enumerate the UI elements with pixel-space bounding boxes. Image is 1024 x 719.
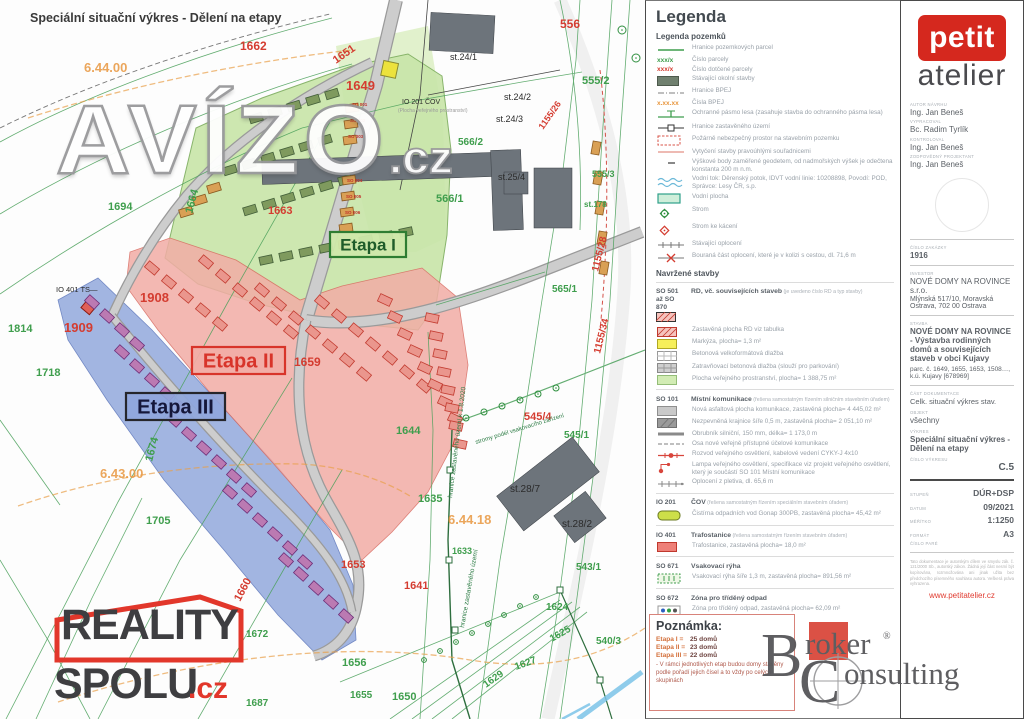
legend-row: Strom ke kácení <box>656 223 894 239</box>
spolu-text: SPOLU <box>54 660 197 709</box>
map-label: 1908 <box>140 290 169 305</box>
etapa-label: Etapa II <box>203 351 274 373</box>
line-reddot-icon <box>656 451 687 460</box>
tree-red-icon <box>656 223 687 238</box>
rect-reddash-icon <box>656 135 687 146</box>
map-label: 555/2 <box>582 75 610 87</box>
num-green-icon: xxx/x <box>656 57 687 64</box>
legend-group: SO 672Zóna pro tříděný odpadZóna pro tří… <box>656 588 894 616</box>
person-field: KONTROLOVALIng. Jan Beneš <box>910 137 1014 152</box>
meta-field: ČÍSLO PARÉ <box>910 541 1014 546</box>
legend-row-text: Osa nové veřejně přístupné účelové komun… <box>692 440 828 448</box>
legend-group-header: SO 671Vsakovací rýha <box>656 563 894 571</box>
map-label: 1663 <box>268 205 292 217</box>
legend-row: Vodní tok: Děrenský potok, IDVT vodní li… <box>656 175 894 191</box>
legend-row: x.xx.xxČísla BPEJ <box>656 99 894 107</box>
legend-groups: Hranice pozemkových parcelxxx/xČíslo par… <box>656 44 894 616</box>
avizo-text: AVÍZO <box>56 85 389 194</box>
rect-teal-icon <box>656 193 687 204</box>
legend-row: Vodní plocha <box>656 193 894 205</box>
legend-group: Hranice pozemkových parcelxxx/xČíslo par… <box>656 44 894 263</box>
wavy-icon <box>656 176 687 188</box>
legend-row: Betonová velkoformátová dlažba <box>656 350 894 361</box>
legend-row: Hranice BPEJ <box>656 87 894 98</box>
legend-row-text: Bouraná část oplocení, které je v kolizi… <box>692 252 856 260</box>
legend-row: Ochranné pásmo lesa (zasahuje stavba do … <box>656 109 894 122</box>
map-label: 6.44.00 <box>84 60 127 75</box>
legend-group-header: SO 672Zóna pro tříděný odpad <box>656 595 894 603</box>
legend-row-text: Plocha veřejného prostranství, plocha= 1… <box>692 375 836 383</box>
reality-cz: .cz <box>188 672 228 706</box>
legend-row: Hranice zastavěného území <box>656 123 894 134</box>
petit-atelier-logo: petit <box>918 15 1006 61</box>
legend-row: Stávající okolní stavby <box>656 75 894 86</box>
map-label: 6.44.18 <box>448 512 491 527</box>
legend-row: Nová asfaltová plocha komunikace, zastav… <box>656 406 894 417</box>
person-field: VYPRACOVALBc. Radim Tyrlík <box>910 119 1014 134</box>
map-label: st.28/7 <box>510 484 540 495</box>
legend-row: Trafostanice, zastavěná plocha= 18,0 m² <box>656 542 894 553</box>
legend-row: Čistírna odpadních vod Gonap 300PB, zast… <box>656 510 894 522</box>
parcels-text: parc. č. 1649, 1655, 1653, 1508…, k.ú. K… <box>910 366 1014 380</box>
drawing-page: Etapa IEtapa IIEtapa III Speciální situa… <box>0 0 1024 719</box>
part-field: ČÁST DOKUMENTACE Celk. situační výkres s… <box>910 391 1014 406</box>
rect-yellow-icon <box>656 339 687 349</box>
line-thick-icon <box>656 430 687 438</box>
legend-row: Strom <box>656 206 894 222</box>
map-label: 1624 <box>546 602 569 613</box>
tick-icon <box>656 159 687 167</box>
map-label: 565/1 <box>552 284 577 295</box>
map-label: 1655 <box>350 690 373 701</box>
line-green-icon <box>656 45 687 55</box>
legend-row: Vytyčení stavby pravoúhlými souřadnicemi <box>656 148 894 157</box>
legend-group: SO 671Vsakovací rýhaVsakovací rýha šíře … <box>656 556 894 584</box>
map-label: Speciální situační výkres - Dělení na et… <box>30 11 282 25</box>
legend-row-text: Zatravňovací betonová dlažba (slouží pro… <box>692 363 839 371</box>
map-label: hranice zastavěného území <box>459 549 480 629</box>
avizo-cz: .cz <box>389 132 453 183</box>
legend-row: xxx/xČíslo dotčené parcely <box>656 66 894 74</box>
rect-redsolid-icon <box>656 542 687 552</box>
legend-row-text: Čistírna odpadních vod Gonap 300PB, zast… <box>692 510 881 518</box>
legend-row: Osa nové veřejně přístupné účelové komun… <box>656 440 894 449</box>
legend-row: Lampa veřejného osvětlení, specifikace v… <box>656 461 894 477</box>
broker-registered-mark: ® <box>883 631 891 642</box>
line-T-icon <box>656 109 687 121</box>
object-field: OBJEKT všechny <box>910 410 1014 425</box>
legend-group: IO 401Trafostanice (řešena samostatným ř… <box>656 525 894 552</box>
fence-x-icon <box>656 253 687 263</box>
line-dashdot-icon <box>656 88 687 98</box>
legend-row: Markýza, plocha= 1,3 m² <box>656 338 894 349</box>
line-sq-icon <box>656 123 687 133</box>
pill-yg-icon <box>656 510 687 521</box>
legend-row-text: Požárně nebezpečný prostor na stavebním … <box>692 135 839 143</box>
rect-gray-icon <box>656 406 687 416</box>
legend-row-text: Zóna pro tříděný odpad, zastavěná plocha… <box>692 605 840 613</box>
copyright-note: Tato dokumentace je autorským dílem ve s… <box>910 559 1014 588</box>
legend-row-text: Betonová velkoformátová dlažba <box>692 350 783 358</box>
legend-row: Zastavěná plocha RD viz tabulka <box>656 326 894 337</box>
map-label: 1629 <box>481 668 506 690</box>
legend-row-text: Lampa veřejného osvětlení, specifikace v… <box>692 461 894 477</box>
etapa-label: Etapa III <box>137 397 214 419</box>
legend-row-text: Výškové body zaměřené geodetem, od nadmo… <box>692 158 894 174</box>
reality-text: REALITY <box>61 601 238 650</box>
legend-row: Vsakovací rýha šíře 1,3 m, zastavěná plo… <box>656 573 894 585</box>
legend-row-text: Vytyčení stavby pravoúhlými souřadnicemi <box>692 148 811 156</box>
map-label: 1909 <box>64 320 93 335</box>
map-label: 1653 <box>341 559 365 571</box>
legend-row-text: Markýza, plocha= 1,3 m² <box>692 338 761 346</box>
legend-row-text: Oplocení z pletiva, dl. 65,6 m <box>692 478 773 486</box>
map-label: 1659 <box>294 355 321 369</box>
legend-row-text: Vsakovací rýha šíře 1,3 m, zastavěná plo… <box>692 573 851 581</box>
legend-row-text: Obrubník silniční, 150 mm, délka= 1 173,… <box>692 430 817 438</box>
grid-white-icon <box>656 351 687 361</box>
cov-marker <box>381 61 399 79</box>
legend-row: Výškové body zaměřené geodetem, od nadmo… <box>656 158 894 174</box>
legend-group-header: IO 201ČOV (řešena samostatným řízením sp… <box>656 499 894 507</box>
map-label: st.24/1 <box>450 52 477 62</box>
legend-row-text: Strom ke kácení <box>692 223 738 231</box>
map-label: 566/2 <box>458 137 483 148</box>
legend-row: Oplocení z pletiva, dl. 65,6 m <box>656 478 894 489</box>
meta-field: FORMÁTA3 <box>910 528 1014 539</box>
project-field: STAVBA NOVÉ DOMY NA ROVINCE - Výstavba r… <box>910 321 1014 380</box>
person-field: ZODPOVĚDNÝ PROJEKTANTIng. Jan Beneš <box>910 154 1014 169</box>
person-field: AUTOR NÁVRHUIng. Jan Beneš <box>910 102 1014 117</box>
num-orange-icon: x.xx.xx <box>656 100 687 107</box>
legend-row-text: Rozvod veřejného osvětlení, kabelové ved… <box>692 450 858 458</box>
rect-dgray-icon <box>656 418 687 428</box>
legend-row-text: Vodní tok: Děrenský potok, IDVT vodní li… <box>692 175 894 191</box>
map-label: 556 <box>560 17 580 31</box>
legend-row-text: Hranice pozemkových parcel <box>692 44 773 52</box>
legend-row-text: Trafostanice, zastavěná plocha= 18,0 m² <box>692 542 806 550</box>
logo-text-petit: petit <box>929 21 995 55</box>
logo-text-atelier: atelier <box>910 59 1014 93</box>
legend-row: Zatravňovací betonová dlažba (slouží pro… <box>656 363 894 374</box>
map-label: 1633 <box>452 546 472 556</box>
map-label: 543/1 <box>576 562 601 573</box>
lamp-icon <box>656 462 687 475</box>
broker-B: B <box>761 625 802 687</box>
legend-row-text: Hranice BPEJ <box>692 87 731 95</box>
legend-row-text: Stávající okolní stavby <box>692 75 755 83</box>
map-label: 1718 <box>36 367 60 379</box>
map-label: 1705 <box>146 515 170 527</box>
fence-icon <box>656 240 687 250</box>
legend-group: SO 501 až SO 870RD, vč. souvisejících st… <box>656 282 894 386</box>
legend-row: Požárně nebezpečný prostor na stavebním … <box>656 135 894 147</box>
legend-row-text: Strom <box>692 206 709 214</box>
legend-row: Obrubník silniční, 150 mm, délka= 1 173,… <box>656 430 894 439</box>
map-label: 1644 <box>396 425 421 437</box>
title-block: petit atelier AUTOR NÁVRHUIng. Jan Beneš… <box>900 0 1024 719</box>
people-fields: AUTOR NÁVRHUIng. Jan BenešVYPRACOVALBc. … <box>910 99 1014 172</box>
legend-row: Hranice pozemkových parcel <box>656 44 894 55</box>
stamp-placeholder <box>935 178 989 232</box>
petit-atelier-website: www.petitatelier.cz <box>910 591 1014 600</box>
line-pink-icon <box>656 148 687 156</box>
map-label: 545/1 <box>564 430 589 441</box>
legend-row-text: Číslo parcely <box>692 56 728 64</box>
meta-field: DATUM09/2021 <box>910 501 1014 512</box>
hatch-red-icon <box>656 327 687 337</box>
map-label: 1650 <box>392 691 416 703</box>
legend-row: Rozvod veřejného osvětlení, kabelové ved… <box>656 450 894 460</box>
rect-gdash-icon <box>656 573 687 584</box>
legend-group: SO 101Místní komunikace (řešena samostat… <box>656 389 894 489</box>
legend-row-text: Čísla BPEJ <box>692 99 724 107</box>
broker-C: C <box>799 651 840 713</box>
etapa-label: Etapa I <box>340 236 396 255</box>
line-dash-icon <box>656 440 687 448</box>
broker-onsulting: onsulting <box>844 658 959 689</box>
legend-row: xxx/xČíslo parcely <box>656 56 894 64</box>
legend-row-text: Nová asfaltová plocha komunikace, zastav… <box>692 406 881 414</box>
legend-group-header: IO 401Trafostanice (řešena samostatným ř… <box>656 532 894 540</box>
legend-row-text: Číslo dotčené parcely <box>692 66 753 74</box>
map-label: 1814 <box>8 323 33 335</box>
map-label: st.28/2 <box>562 519 592 530</box>
map-label: 1662 <box>240 39 267 53</box>
legend-row-text: Vodní plocha <box>692 193 728 201</box>
map-label: 540/3 <box>596 636 621 647</box>
legend-row: Nezpevněná krajnice šíře 0,5 m, zastavěn… <box>656 418 894 429</box>
map-label: 1641 <box>404 580 428 592</box>
broker-consulting-watermark: B roker ® C onsulting <box>755 615 950 715</box>
rect-lgreen-icon <box>656 375 687 385</box>
grid-gray-icon <box>656 363 687 373</box>
legend-row-text: Zastavěná plocha RD viz tabulka <box>692 326 784 334</box>
map-label: 1155/34 <box>592 317 611 355</box>
house-footprint <box>591 141 601 155</box>
map-label: 1656 <box>342 657 366 669</box>
investor-field: INVESTOR NOVÉ DOMY NA ROVINCE s.r.o. Mlý… <box>910 271 1014 310</box>
legend-title: Legenda <box>656 7 894 27</box>
legend-group-header: SO 101Místní komunikace (řešena samostat… <box>656 396 894 404</box>
map-label: 555/3 <box>592 169 615 179</box>
legend-row: Bouraná část oplocení, které je v kolizi… <box>656 252 894 263</box>
drawing-name-field: VÝKRES Speciální situační výkres - Dělen… <box>910 429 1014 453</box>
meta-field: MĚŘÍTKO1:1250 <box>910 514 1014 525</box>
legend-row-text: Nezpevněná krajnice šíře 0,5 m, zastavěn… <box>692 418 872 426</box>
legend-row: Plocha veřejného prostranství, plocha= 1… <box>656 375 894 386</box>
legend-group: IO 201ČOV (řešena samostatným řízením sp… <box>656 493 894 521</box>
map-label: 6.43.00 <box>100 466 143 481</box>
map-label: 1635 <box>418 493 442 505</box>
meta-fields: STUPEŇDÚR+DSPDATUM09/2021MĚŘÍTKO1:1250FO… <box>910 485 1014 549</box>
map-label: IO 401 TS— <box>56 285 98 294</box>
legend-panel: Legenda Legenda pozemků Hranice pozemkov… <box>645 0 900 719</box>
order-number-field: ČÍSLO ZAKÁZKY 1916 <box>910 245 1014 260</box>
tree-icon <box>656 206 687 221</box>
legend-row: Stávající oplocení <box>656 240 894 251</box>
map-label: st.24/2 <box>504 92 531 102</box>
map-label: 1627 <box>513 655 538 673</box>
legend-row-text: Ochranné pásmo lesa (zasahuje stavba do … <box>692 109 883 117</box>
legend-subtitle: Legenda pozemků <box>656 32 894 41</box>
map-label: st.24/3 <box>496 114 523 124</box>
map-label: st.178 <box>584 200 607 209</box>
meta-field: STUPEŇDÚR+DSP <box>910 487 1014 498</box>
avizo-watermark: AVÍZO.cz <box>56 84 453 196</box>
fence2-icon <box>656 479 687 489</box>
drawing-number-field: ČÍSLO VÝKRESU C.5 <box>910 457 1014 473</box>
map-label: 1694 <box>108 201 133 213</box>
num-red-icon: xxx/x <box>656 66 687 73</box>
legend-section-heading: Navržené stavby <box>656 269 894 278</box>
legend-row-text: Hranice zastavěného území <box>692 123 770 131</box>
rect-dkgreen-icon <box>656 76 687 86</box>
legend-row-text: Stávající oplocení <box>692 240 742 248</box>
map-label: st.25/4 <box>498 172 525 182</box>
map-label: SO 006 <box>345 210 361 215</box>
legend-group-header: SO 501 až SO 870RD, vč. souvisejících st… <box>656 288 894 325</box>
map-label: 1155/26 <box>536 99 563 131</box>
